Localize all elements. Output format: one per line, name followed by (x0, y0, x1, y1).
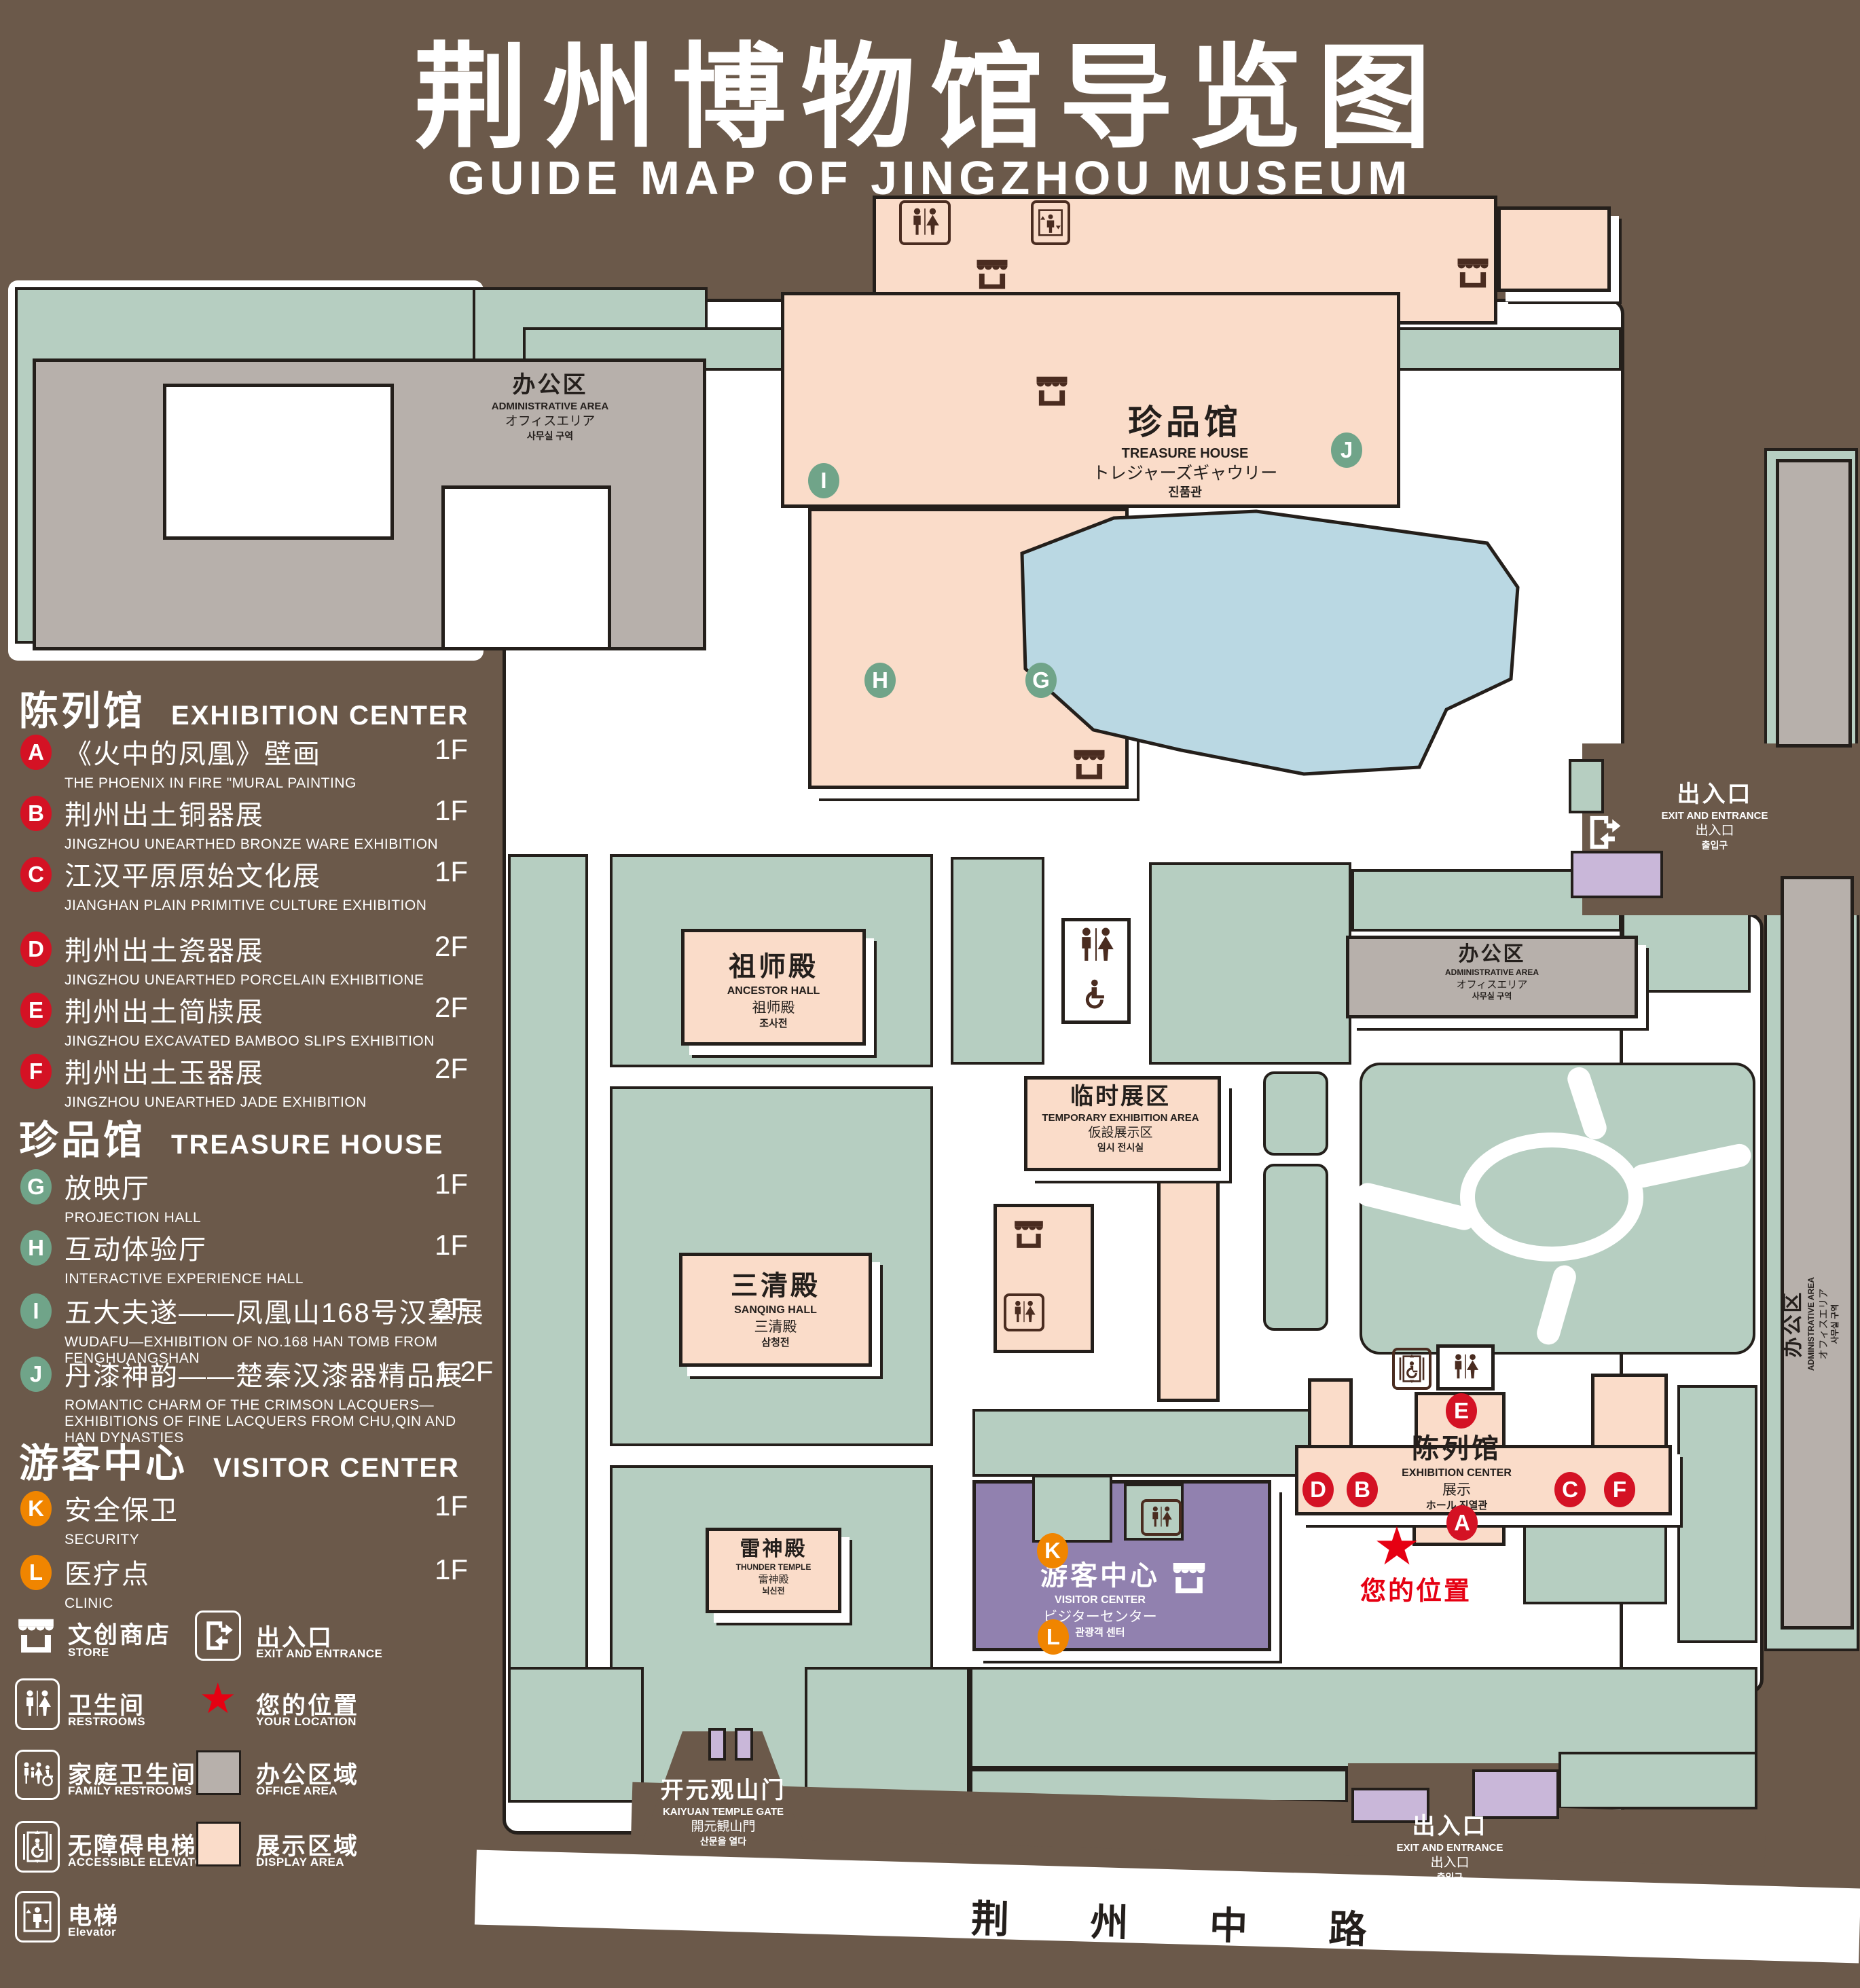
legend-item-L: 医疗点 CLINIC (65, 1552, 486, 1612)
store-icon (1070, 745, 1109, 782)
legend-item-C: 江汉平原原始文化展 JIANGHAN PLAIN PRIMITIVE CULTU… (65, 854, 486, 914)
visitor-center-lawn-tab-a (1032, 1475, 1112, 1543)
lawn-admin-mid-east (1622, 910, 1751, 993)
map-marker-D: D (1302, 1472, 1334, 1507)
legend-item-B: 荆州出土铜器展 JINGZHOU UNEARTHED BRONZE WARE E… (65, 793, 486, 853)
admin-northwest-label: 办公区 ADMINISTRATIVE AREA オフィスエリア 사무실 구역 (407, 370, 693, 443)
lawn-temp-east-a (1263, 1071, 1328, 1156)
legend-item-A: 《火中的凤凰》壁画 THE PHOENIX IN FIRE "MURAL PAI… (65, 732, 486, 792)
map-marker-E: E (1446, 1393, 1477, 1429)
exit-icon (1584, 812, 1623, 853)
lawn-bottom-right (1558, 1752, 1757, 1809)
lawn-east-column (1677, 1385, 1757, 1643)
restroom-icon (1068, 925, 1125, 967)
admin-east-label: 办公区 ADMINISTRATIVE AREA オフィスエリア 사무실 구역 (1780, 1134, 1855, 1514)
floor-F: 2F (435, 1052, 468, 1085)
legend-item-K: 安全保卫 SECURITY (65, 1488, 486, 1548)
section-treasure-house: 珍品馆TREASURE HOUSE (19, 1108, 443, 1165)
section-visitor-center: 游客中心VISITOR CENTER (19, 1431, 460, 1488)
exhibition-center-arm-west (1308, 1378, 1353, 1450)
legend-marker-I: I (20, 1293, 52, 1329)
your-location-star: ★ (1373, 1520, 1421, 1572)
legend-item-G: 放映厅 PROJECTION HALL (65, 1166, 486, 1226)
location-star-icon: ★ (199, 1678, 237, 1720)
restroom-icon (15, 1678, 60, 1730)
floor-K: 1F (435, 1490, 468, 1522)
elevator-icon (1031, 200, 1070, 245)
store-icon (1453, 254, 1493, 291)
legend-marker-A: A (20, 735, 52, 770)
store-icon (15, 1610, 57, 1659)
legend-marker-H: H (20, 1230, 52, 1266)
lawn-left-column (508, 854, 588, 1796)
admin-mid-label: 办公区 ADMINISTRATIVE AREA オフィスエリア 사무실 구역 (1346, 941, 1638, 1002)
floor-B: 1F (435, 794, 468, 827)
floor-E: 2F (435, 991, 468, 1024)
legend-item-F: 荆州出土玉器展 JINGZHOU UNEARTHED JADE EXHIBITI… (65, 1051, 486, 1111)
pond (1012, 506, 1521, 777)
office-area-swatch (196, 1750, 241, 1795)
lawn-above-visitor (972, 1409, 1324, 1477)
legend-item-H: 互动体验厅 INTERACTIVE EXPERIENCE HALL (65, 1228, 486, 1287)
accessible-icon (1078, 976, 1114, 1014)
lawn-bottom-mid (805, 1667, 970, 1803)
map-marker-L: L (1038, 1619, 1069, 1655)
legend-marker-G: G (20, 1169, 52, 1204)
northeast-gate-building (1571, 851, 1663, 898)
symbol-display-en: DISPLAY AREA (256, 1856, 344, 1869)
map-marker-A: A (1446, 1505, 1478, 1541)
sanqing-hall-label: 三清殿 SANQING HALL 三清殿 삼청전 (679, 1268, 872, 1350)
treasure-house-label: 珍品馆 TREASURE HOUSE トレジャーズギャウリー 진품관 (1059, 401, 1311, 500)
symbol-exit-en: EXIT AND ENTRANCE (256, 1647, 382, 1661)
east-strip-upper-building (1776, 459, 1852, 748)
accessible-elevator-icon (15, 1821, 60, 1873)
store-icon (1169, 1558, 1209, 1596)
restroom-icon (1436, 1344, 1495, 1391)
gate-pillar-east (735, 1728, 753, 1761)
restroom-icon (1004, 1293, 1044, 1331)
legend-marker-D: D (20, 932, 52, 967)
store-icon (972, 255, 1012, 292)
symbol-restroom-en: RESTROOMS (68, 1715, 145, 1729)
legend-marker-L: L (20, 1555, 52, 1590)
map-marker-H: H (864, 663, 896, 698)
south-exit-label: 出入口 EXIT AND ENTRANCE 出入口 출입구 (1351, 1811, 1548, 1884)
legend-marker-K: K (20, 1491, 52, 1526)
guide-map-poster: { "title": { "zh": "荆州博物馆导览图", "en": "GU… (0, 0, 1860, 1988)
lawn-bottom-left (508, 1667, 644, 1803)
kaiyuan-gate-label: 开元观山门 KAIYUAN TEMPLE GATE 開元観山門 산문을 열다 (632, 1775, 815, 1848)
exit-icon (195, 1610, 241, 1661)
store-icon (1010, 1217, 1047, 1251)
lawn-ne-notch (1569, 759, 1604, 813)
map-marker-C: C (1554, 1472, 1586, 1507)
map-marker-K: K (1037, 1533, 1068, 1568)
gate-pillar-west (708, 1728, 726, 1761)
legend-item-E: 荆州出土简牍展 JINGZHOU EXCAVATED BAMBOO SLIPS … (65, 990, 486, 1050)
treasure-house-northeast-tab (1497, 206, 1611, 292)
display-area-swatch (196, 1822, 241, 1866)
symbol-family-en: FAMILY RESTROOMS (68, 1784, 192, 1798)
symbol-office-en: OFFICE AREA (256, 1784, 338, 1798)
map-marker-J: J (1331, 432, 1362, 468)
accessible-elevator-icon (1392, 1348, 1432, 1390)
exhibition-center-arm-east (1591, 1374, 1668, 1450)
legend-item-D: 荆州出土瓷器展 JINGZHOU UNEARTHED PORCELAIN EXH… (65, 929, 486, 989)
symbol-location-en: YOUR LOCATION (256, 1715, 357, 1729)
store-icon (1032, 372, 1072, 409)
floor-A: 1F (435, 733, 468, 766)
floor-L: 1F (435, 1553, 468, 1586)
park-pond-path (1460, 1133, 1643, 1262)
map-marker-I: I (808, 463, 839, 498)
legend-marker-E: E (20, 993, 52, 1028)
thunder-temple-label: 雷神殿 THUNDER TEMPLE 雷神殿 뇌신전 (706, 1536, 841, 1597)
map-marker-G: G (1025, 663, 1057, 698)
northeast-exit-label: 出入口 EXIT AND ENTRANCE 出入口 출입구 (1626, 779, 1803, 852)
your-location-label: 您的位置 (1351, 1570, 1480, 1607)
floor-J: 1-2F (435, 1355, 493, 1388)
exhibition-center-label: 陈列馆 EXHIBITION CENTER 展示 ホール 진열관 (1355, 1431, 1558, 1513)
lawn-below-exhibition (1523, 1523, 1667, 1604)
road-label: 荆 州 中 路 (970, 1888, 1403, 1955)
lawn-above-temporary (1149, 862, 1351, 1065)
symbol-elevator-en: Elevator (68, 1926, 116, 1939)
ancestor-hall-label: 祖师殿 ANCESTOR HALL 祖师殿 조사전 (681, 949, 866, 1031)
page-title: 荆州博物馆导览图 (0, 5, 1860, 170)
elevator-icon (15, 1891, 60, 1943)
legend-marker-B: B (20, 796, 52, 831)
floor-G: 1F (435, 1168, 468, 1200)
family-restroom-icon (15, 1750, 60, 1800)
temporary-exhibition-label: 临时展区 TEMPORARY EXHIBITION AREA 仮設展示区 임시 … (1019, 1082, 1222, 1154)
symbol-store-en: STORE (68, 1646, 109, 1659)
lawn-right-of-ancestor (951, 857, 1044, 1065)
legend-marker-J: J (20, 1357, 52, 1392)
map-marker-F: F (1604, 1472, 1635, 1507)
symbol-accessible-elevator-en: ACCESSIBLE ELEVATOR (68, 1856, 213, 1869)
restroom-icon (1141, 1499, 1182, 1536)
map-marker-B: B (1347, 1472, 1378, 1507)
section-exhibition-center: 陈列馆EXHIBITION CENTER (19, 679, 469, 736)
lawn-temp-east-b (1263, 1164, 1328, 1331)
floor-C: 1F (435, 855, 468, 888)
floor-H: 1F (435, 1229, 468, 1262)
floor-I: 2F (435, 1292, 468, 1325)
admin-northwest-courtyard-b (441, 485, 611, 650)
floor-D: 2F (435, 930, 468, 963)
legend-marker-F: F (20, 1054, 52, 1089)
legend-marker-C: C (20, 857, 52, 892)
restroom-icon (899, 200, 951, 245)
admin-northwest-courtyard-a (163, 384, 394, 540)
